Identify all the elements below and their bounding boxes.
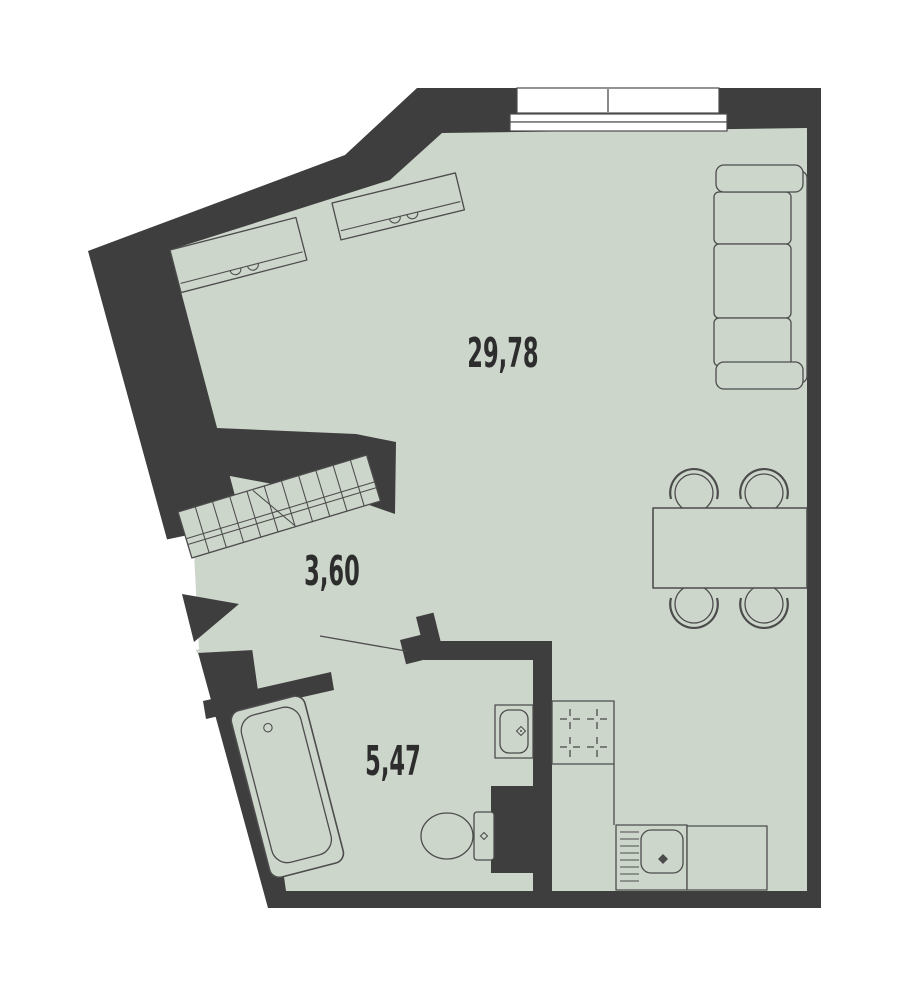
sofa-armrest	[716, 165, 803, 192]
sofa-cushion	[714, 318, 791, 366]
toilet	[421, 812, 494, 860]
floor-plan: 29,78 3,60 5,47	[0, 0, 900, 996]
room-label-bathroom: 5,47	[365, 737, 421, 785]
sofa-cushion	[714, 244, 791, 318]
countertop	[687, 826, 767, 890]
window-sill-inner	[510, 122, 727, 131]
room-label-living: 29,78	[467, 329, 538, 377]
floor-plan-canvas: 29,78 3,60 5,47	[0, 0, 900, 996]
washbasin	[495, 705, 533, 758]
dining-table	[653, 508, 807, 588]
kitchen-sink	[616, 825, 687, 890]
stove	[552, 701, 614, 764]
sofa	[714, 165, 807, 389]
window-sill-outer	[510, 114, 727, 122]
toilet-duct	[491, 786, 537, 873]
sink-bowl	[641, 830, 683, 873]
window	[510, 88, 727, 131]
window-glass	[517, 88, 719, 113]
bathroom-kitchen-wall-horizontal	[424, 641, 552, 660]
toilet-tank	[474, 812, 494, 860]
toilet-bowl	[421, 813, 473, 859]
sofa-armrest	[716, 362, 803, 389]
sofa-cushion	[714, 192, 791, 244]
room-label-hall: 3,60	[304, 547, 360, 595]
